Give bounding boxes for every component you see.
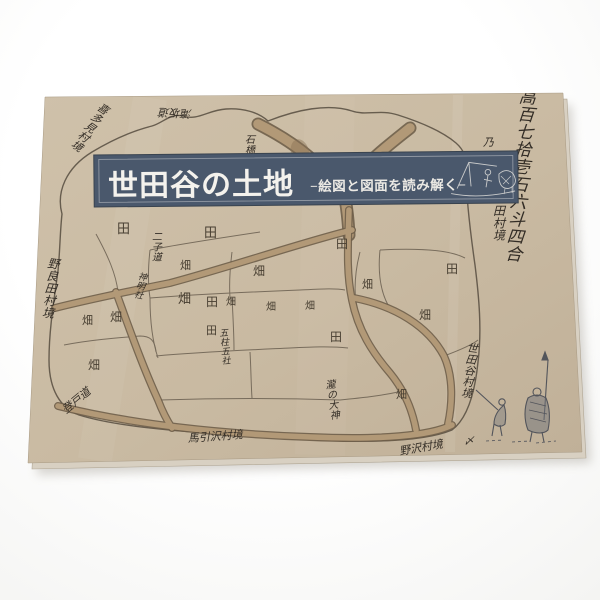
- field-label: 田: [117, 221, 130, 236]
- book-title: 世田谷の土地: [108, 168, 294, 203]
- field-label: 畑: [82, 314, 93, 327]
- field-label: 田: [330, 330, 342, 344]
- field-label: 田: [336, 237, 348, 251]
- photo-scene: 田田田田田田田畑畑畑畑畑畑畑畑畑畑畑畑 喜多見村境滝坂道石橋乃高百七拾壱石六斗四…: [0, 0, 600, 600]
- map-annotation: 〆: [464, 436, 475, 447]
- field-label: 畑: [226, 295, 236, 308]
- field-label: 畑: [180, 259, 191, 272]
- map-annotation: 乃: [483, 137, 494, 149]
- field-label: 田: [204, 225, 217, 240]
- field-label: 畑: [266, 300, 276, 313]
- field-label: 畑: [178, 291, 191, 306]
- field-label: 畑: [396, 388, 407, 401]
- field-label: 田: [206, 325, 217, 337]
- book-photo: 田田田田田田田畑畑畑畑畑畑畑畑畑畑畑畑 喜多見村境滝坂道石橋乃高百七拾壱石六斗四…: [0, 0, 600, 600]
- map-annotation: 滝坂道: [157, 105, 193, 120]
- field-label: 畑: [253, 264, 265, 278]
- field-label: 畑: [419, 308, 431, 322]
- field-label: 畑: [110, 310, 122, 324]
- field-label: 田: [446, 262, 458, 276]
- field-label: 畑: [88, 358, 100, 372]
- field-label: 畑: [305, 299, 315, 312]
- field-label: 田: [206, 295, 218, 309]
- field-label: 畑: [362, 278, 373, 291]
- book-subtitle: −絵図と図面を読み解く−: [310, 176, 467, 194]
- map-annotation: 田村境: [493, 204, 507, 243]
- title-banner: 世田谷の土地 −絵図と図面を読み解く−: [94, 151, 518, 207]
